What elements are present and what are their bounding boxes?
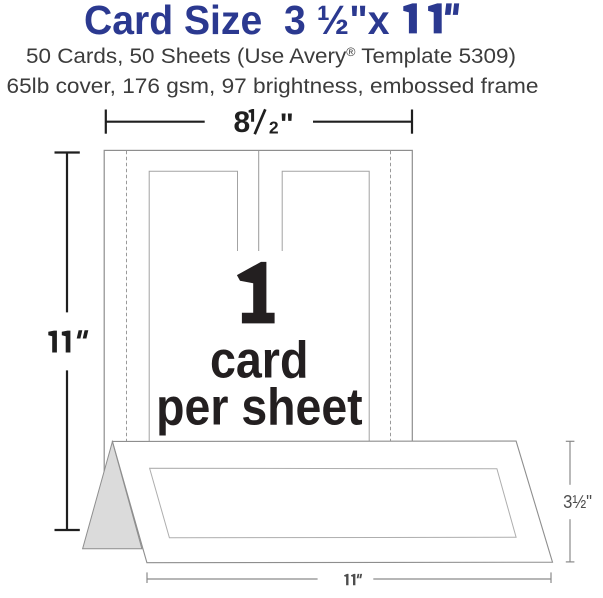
svg-text:": " <box>280 108 294 141</box>
svg-text:Card Size 3 ½"x: Card Size 3 ½"x <box>84 0 390 43</box>
svg-text:per sheet: per sheet <box>156 378 363 436</box>
svg-text:8: 8 <box>234 106 251 139</box>
svg-text:3½": 3½" <box>563 491 592 512</box>
svg-text:2: 2 <box>269 118 279 138</box>
svg-text:50 Cards, 50 Sheets (Use Avery: 50 Cards, 50 Sheets (Use Avery® Template… <box>26 43 516 68</box>
svg-text:65lb cover, 176 gsm, 97 bright: 65lb cover, 176 gsm, 97 brightness, embo… <box>7 73 539 98</box>
